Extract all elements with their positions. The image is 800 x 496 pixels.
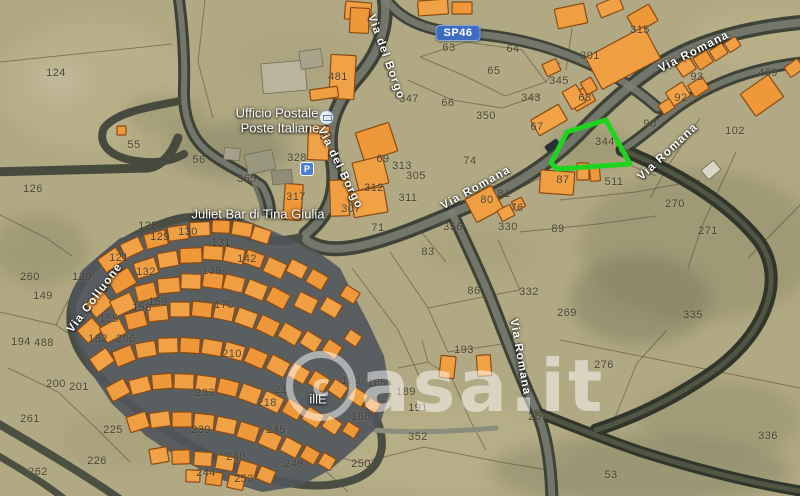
building bbox=[149, 447, 169, 465]
building bbox=[307, 126, 329, 161]
satellite-map-image bbox=[0, 0, 800, 496]
building bbox=[350, 186, 388, 218]
building bbox=[172, 450, 190, 465]
building bbox=[205, 471, 223, 486]
building bbox=[215, 416, 238, 435]
building bbox=[157, 277, 180, 294]
building bbox=[213, 303, 236, 322]
building bbox=[511, 197, 525, 211]
building bbox=[589, 168, 600, 182]
building bbox=[223, 246, 246, 265]
building bbox=[554, 3, 588, 29]
building bbox=[349, 8, 369, 34]
building bbox=[224, 147, 241, 160]
building bbox=[174, 374, 195, 390]
building bbox=[180, 248, 203, 264]
building bbox=[215, 455, 235, 472]
building bbox=[157, 250, 179, 268]
building bbox=[227, 474, 245, 490]
building bbox=[158, 338, 179, 354]
building bbox=[147, 305, 168, 322]
building bbox=[181, 274, 202, 290]
building bbox=[202, 272, 224, 290]
building bbox=[117, 126, 126, 135]
building bbox=[299, 49, 323, 70]
building bbox=[439, 355, 456, 378]
building bbox=[167, 225, 189, 242]
building bbox=[170, 302, 190, 317]
building bbox=[231, 220, 253, 237]
building bbox=[190, 221, 211, 236]
route-badge-sp46: SP46 bbox=[436, 25, 481, 41]
building bbox=[283, 183, 303, 220]
building bbox=[186, 470, 200, 482]
building bbox=[596, 0, 623, 18]
building bbox=[352, 156, 389, 191]
building bbox=[203, 245, 224, 260]
building bbox=[195, 375, 217, 393]
building bbox=[476, 355, 491, 377]
building bbox=[194, 451, 213, 466]
building bbox=[180, 337, 201, 353]
building bbox=[149, 411, 171, 429]
building bbox=[452, 2, 472, 14]
building bbox=[212, 220, 231, 234]
building bbox=[271, 169, 292, 185]
building bbox=[355, 122, 398, 161]
building bbox=[191, 301, 212, 318]
building bbox=[193, 413, 214, 430]
building bbox=[172, 412, 192, 427]
building bbox=[329, 180, 349, 217]
building bbox=[201, 338, 223, 356]
building bbox=[740, 75, 783, 117]
building bbox=[151, 373, 172, 390]
building bbox=[418, 0, 449, 16]
building bbox=[542, 58, 561, 76]
building bbox=[539, 170, 575, 195]
building bbox=[261, 60, 307, 94]
map-canvas[interactable]: P 12455561262601491944882002012612252262… bbox=[0, 0, 800, 496]
building bbox=[135, 340, 157, 358]
